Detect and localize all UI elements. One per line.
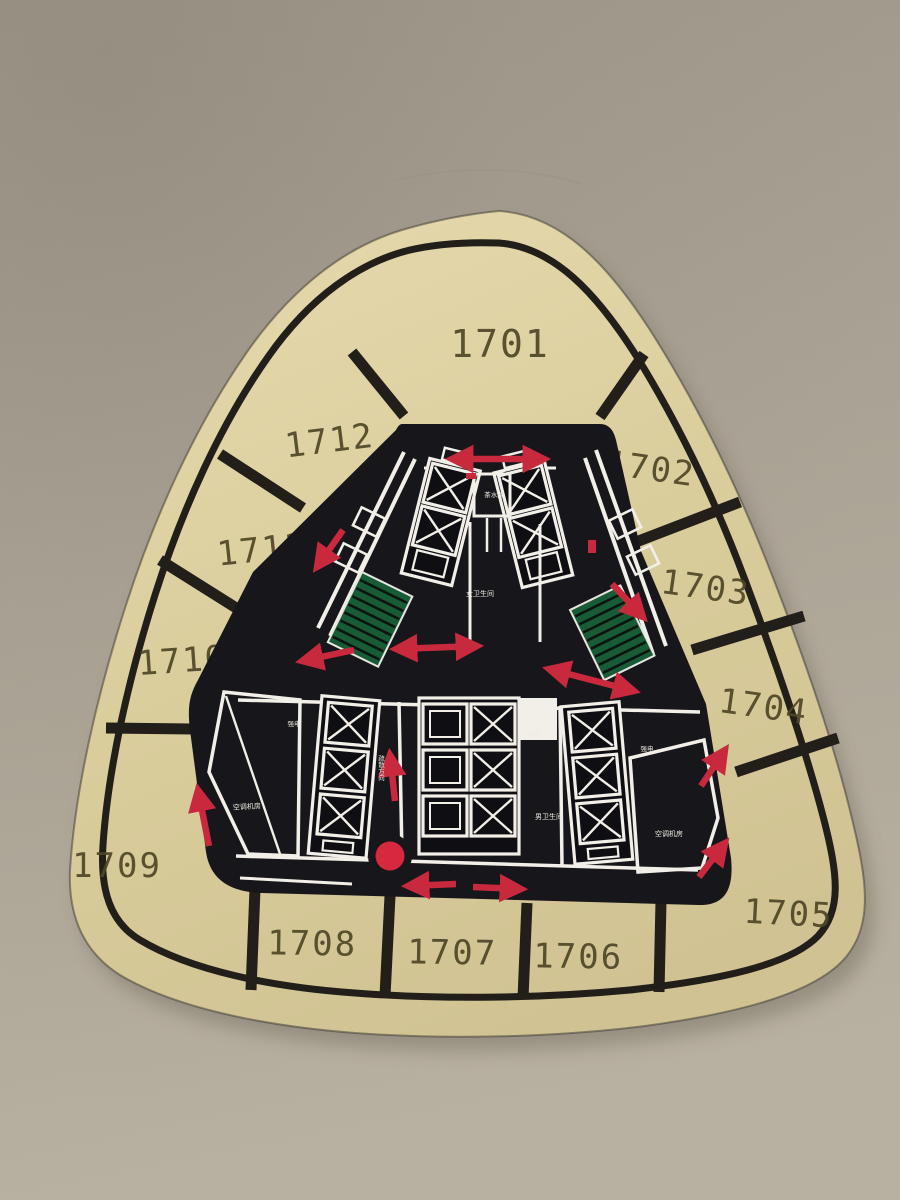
evacuation-arrow [396,646,477,649]
room-label-1708: 1708 [267,923,358,965]
evacuation-arrow [408,884,456,886]
label-strong-electric-right: 强电 [641,744,655,753]
divider-1708-1709 [251,889,255,990]
elevator-bank-lower-right [561,702,633,864]
elevator-bank-middle [419,698,519,854]
divider-1707-1708 [385,896,390,996]
label-men-restroom: 男卫生间 [535,812,563,821]
room-label-1705: 1705 [743,892,835,937]
label-tea-room: 茶水间 [484,490,504,499]
room-label-1701: 1701 [450,322,550,366]
divider-1706-1707 [523,903,527,998]
divider-1709-1710 [106,728,193,729]
label-ac-room-right: 空调机房 [655,829,683,838]
you-are-here-dot [376,842,405,871]
room-label-1706: 1706 [533,936,624,978]
room-label-1709: 1709 [72,846,162,886]
room-label-1707: 1707 [407,932,498,974]
exit-marker [588,540,596,553]
exit-marker [466,473,476,479]
label-weak-electric: 弱电 [528,729,542,738]
label-strong-electric-left: 强电 [288,719,302,728]
elevator-bank-lower-left [308,696,380,858]
evacuation-arrow [473,887,521,889]
floor-plan-sign: 1701 1702 1703 1704 1705 1706 1707 1708 … [0,0,900,1200]
photo-of-floor-directory-sign: { "sign": { "description_labels": { "flo… [0,0,900,1200]
label-women-restroom: 女卫生间 [466,589,494,598]
divider-1705-1706 [659,901,661,992]
